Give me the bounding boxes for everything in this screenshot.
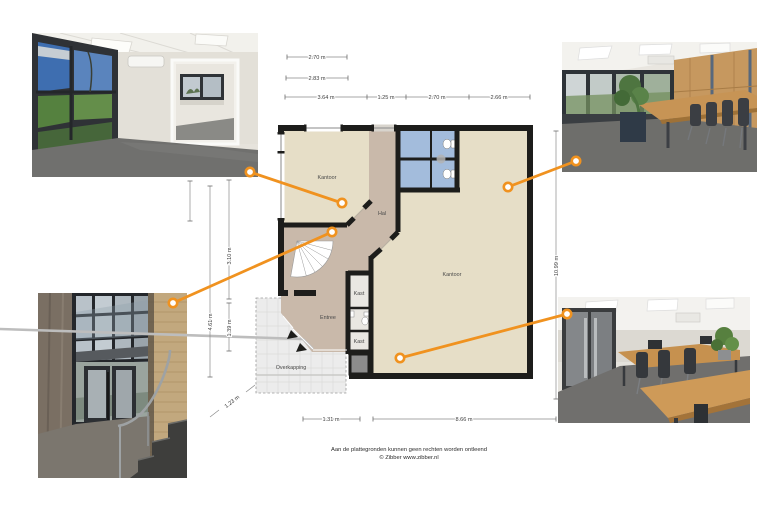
monitor (700, 336, 712, 344)
ceiling-light-panel (647, 299, 678, 311)
air-conditioner (128, 56, 164, 67)
toilet-icon (443, 139, 456, 149)
svg-text:2.66 m: 2.66 m (490, 95, 507, 101)
footer: Aan de plattegronden kunnen geen rechten… (331, 447, 487, 461)
svg-text:2.83 m: 2.83 m (308, 76, 325, 82)
dim-bottom: 1.31 m 8.66 m (303, 417, 556, 424)
tech-square (350, 354, 369, 374)
photo-open-office (558, 297, 750, 423)
ceiling-vent (676, 313, 700, 322)
floor-plan-flyer: Kantoor Hal Kantoor Entree Kast Kast Ove… (0, 0, 768, 512)
label-kantoor-small: Kantoor (318, 175, 337, 181)
ceiling-light-panel (195, 34, 228, 46)
credit-text: © Zibber www.zibber.nl (379, 454, 438, 461)
label-hal: Hal (378, 211, 386, 217)
svg-text:4.61 m: 4.61 m (208, 313, 214, 330)
connector-endpoint (572, 157, 580, 165)
dim-top-1: 2.70 m (287, 55, 347, 62)
connector-endpoint (563, 310, 571, 318)
label-kast-bottom: Kast (354, 339, 365, 345)
toilet-block (396, 130, 457, 188)
connector-endpoint (246, 168, 254, 176)
dim-diagonal: 1.23 m (210, 385, 255, 417)
connector-endpoint (169, 299, 177, 307)
svg-text:8.66 m: 8.66 m (455, 417, 472, 423)
svg-text:3.10 m: 3.10 m (227, 247, 233, 264)
dim-top-row: 3.64 m 1.25 m 2.70 m 2.66 m (285, 95, 530, 102)
toilet-icon (443, 169, 456, 179)
svg-text:10.99 m: 10.99 m (554, 256, 560, 277)
svg-text:2.70 m: 2.70 m (308, 55, 325, 61)
svg-text:1.25 m: 1.25 m (377, 95, 394, 101)
connector-endpoint (504, 183, 512, 191)
label-entree: Entree (320, 315, 336, 321)
disclaimer-text: Aan de plattegronden kunnen geen rechten… (331, 447, 487, 453)
label-kantoor-large: Kantoor (443, 272, 462, 278)
connector-endpoint (328, 228, 336, 236)
label-kast-top: Kast (354, 291, 365, 297)
floor-drain (437, 155, 446, 164)
connector-endpoint (338, 199, 346, 207)
ceiling-light-panel (639, 44, 672, 55)
dim-top-2: 2.83 m (286, 76, 348, 83)
photo-meeting-room (562, 42, 757, 172)
svg-text:1.31 m: 1.31 m (322, 417, 339, 423)
label-overkapping: Overkapping (276, 365, 307, 371)
photo-entrance-stairwell (38, 293, 187, 478)
monitor (648, 340, 662, 349)
svg-text:1.39 m: 1.39 m (227, 319, 233, 336)
svg-text:1.23 m: 1.23 m (224, 394, 241, 409)
connector-endpoint (396, 354, 404, 362)
ceiling-light-panel (578, 46, 612, 60)
svg-text:2.70 m: 2.70 m (428, 95, 445, 101)
carpet-floor (562, 118, 757, 172)
ceiling-vent (648, 56, 674, 64)
photo-office-corner (32, 33, 258, 177)
svg-text:3.64 m: 3.64 m (317, 95, 334, 101)
